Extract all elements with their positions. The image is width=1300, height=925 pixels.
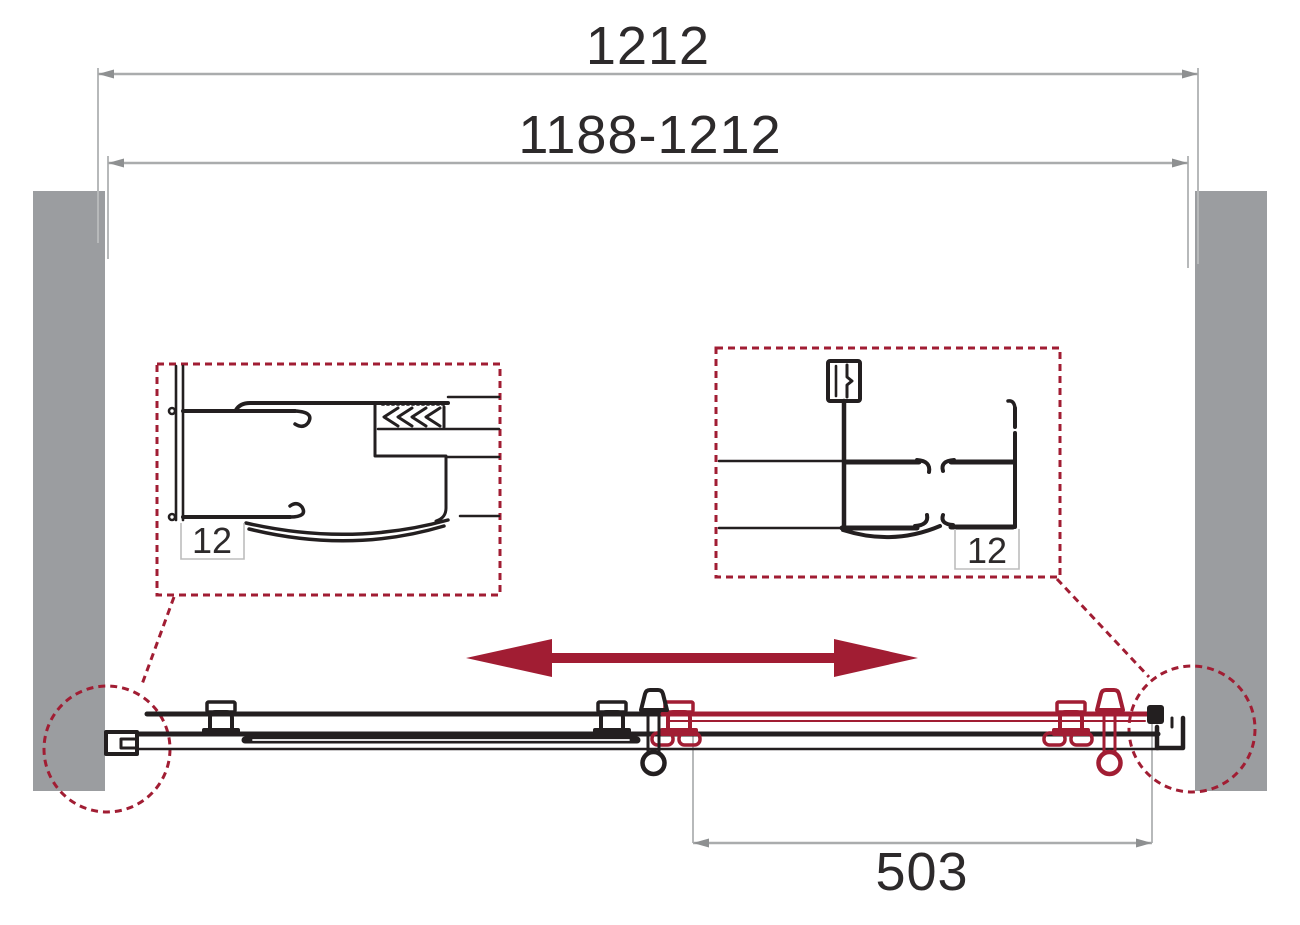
dimension-adjustment-range: 1188-1212 [108, 105, 1188, 268]
roller-sliding-right [1044, 702, 1092, 745]
slide-direction-arrow-icon [466, 639, 918, 677]
drawing-canvas: 1212 1188-1212 503 [0, 0, 1300, 925]
door-seal-section-drawing [719, 361, 1015, 537]
detail-box-left: 12 [157, 364, 500, 595]
wall-left [33, 191, 105, 791]
glass-thickness-right: 12 [955, 529, 1019, 571]
arrowhead-right-icon [1172, 159, 1188, 168]
roller-fixed-left [202, 702, 240, 736]
leader-line-left [141, 597, 174, 687]
thickness-text: 12 [192, 520, 232, 561]
wall-profile-section-drawing [169, 366, 499, 541]
arrowhead-right-icon [1136, 839, 1152, 848]
arrowhead-left-icon [108, 159, 124, 168]
dimension-text: 503 [875, 842, 968, 902]
glass-thickness-left: 12 [181, 520, 244, 561]
wall-bracket-left [106, 732, 137, 754]
door-track-assembly [106, 690, 1183, 774]
thickness-text: 12 [967, 530, 1007, 571]
arrowhead-right-icon [1182, 70, 1198, 79]
end-cap [1147, 705, 1164, 724]
dimension-text: 1212 [586, 16, 710, 76]
dimension-text: 1188-1212 [518, 105, 781, 165]
leader-line-right [1057, 579, 1149, 677]
wall-right [1195, 191, 1267, 791]
roller-fixed-mid [593, 702, 631, 736]
detail-box-right: 12 [716, 348, 1060, 577]
arrowhead-left-icon [98, 70, 114, 79]
seal-chevrons-icon [384, 407, 444, 427]
arrowhead-left-icon [693, 839, 709, 848]
shower-door-plan-drawing: 1212 1188-1212 503 [0, 0, 1300, 925]
